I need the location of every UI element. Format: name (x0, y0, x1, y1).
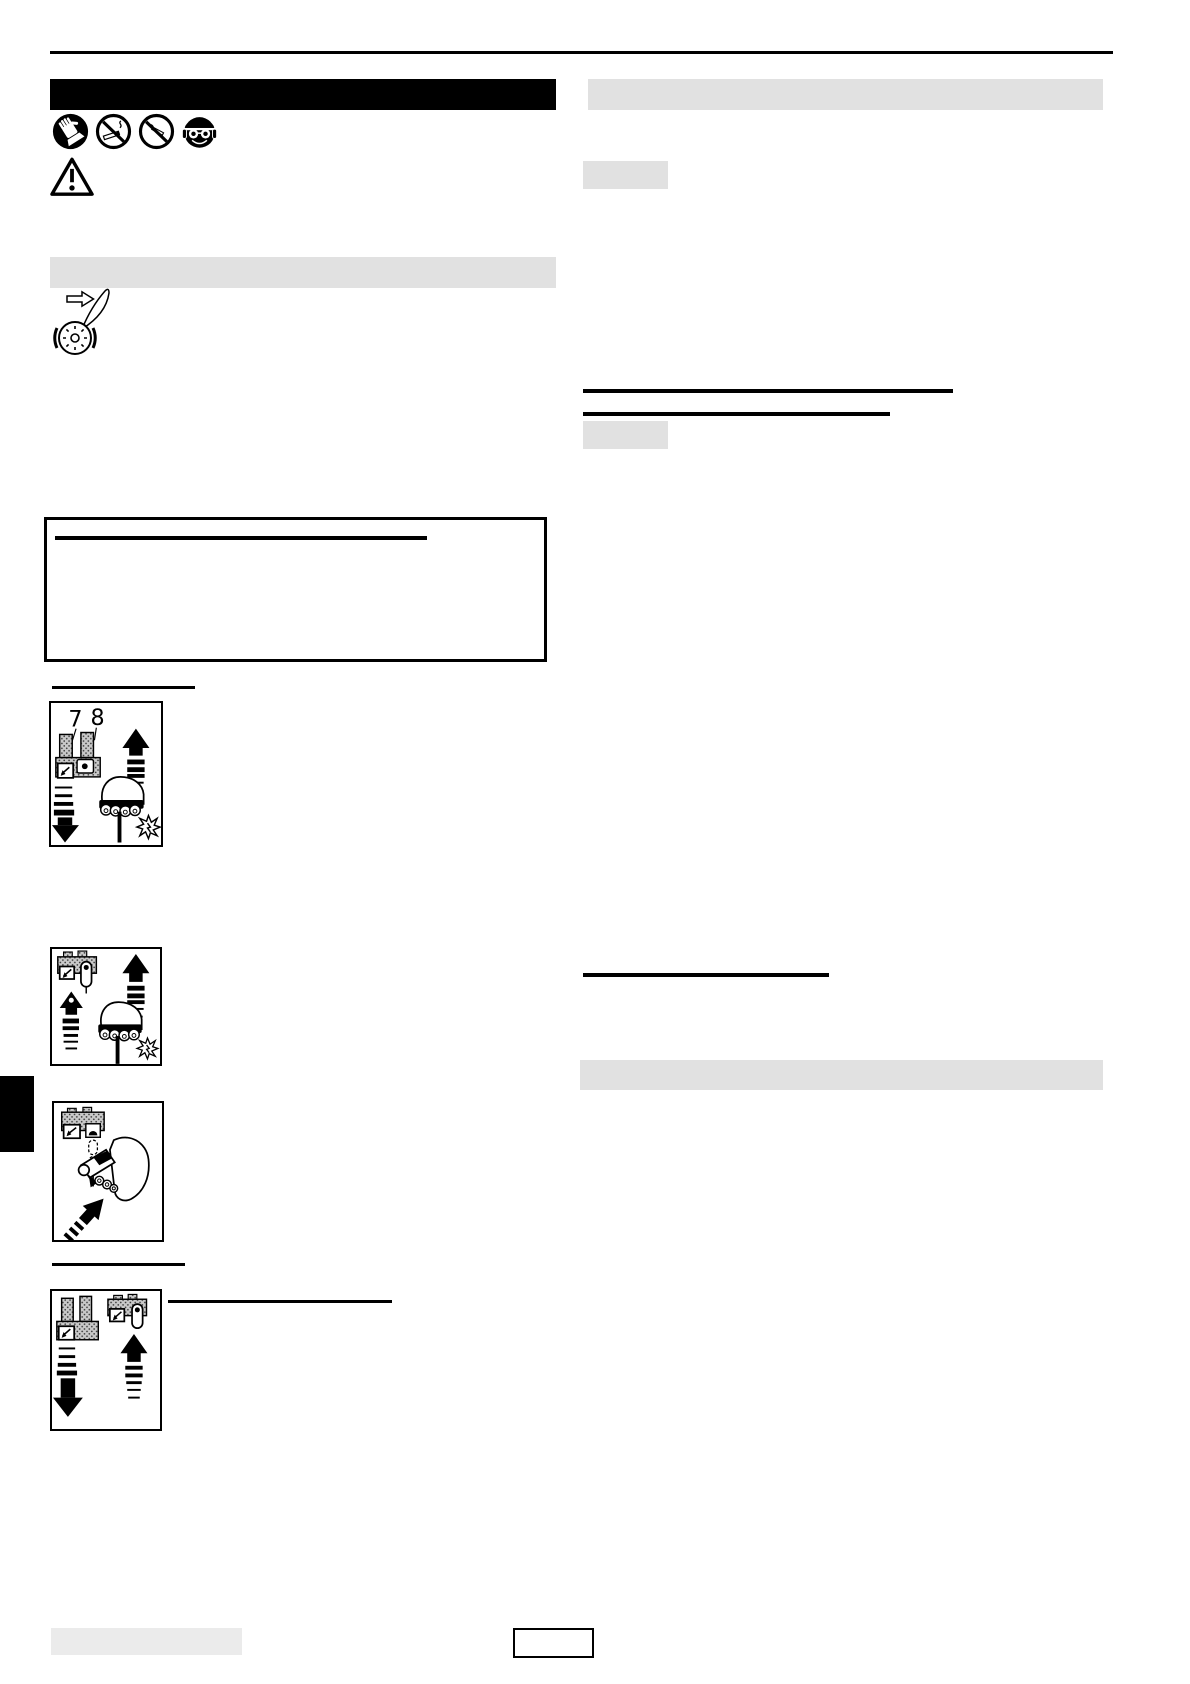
no-smoking-icon (95, 113, 132, 150)
blade-sharpening-illustration (50, 288, 115, 358)
figure-4-drawing (52, 1291, 160, 1429)
figure-3-drawing (54, 1103, 162, 1240)
note-label-box-2 (583, 421, 668, 449)
right-heading-bar (588, 79, 1103, 110)
left-heading-underline-2 (52, 1263, 185, 1266)
callout-8: 8 (91, 705, 105, 731)
top-rule (50, 51, 1113, 54)
figure-lever-positions (50, 1289, 162, 1431)
right-heading-bar-2 (580, 1060, 1103, 1090)
safety-icons-row (52, 113, 218, 150)
figure-primer-knob-hand-grip (52, 1101, 164, 1242)
note-label-box (583, 161, 668, 189)
figure-1-drawing: 7 8 (51, 703, 161, 845)
figure-2-drawing (52, 949, 160, 1064)
right-heading-underline-1 (583, 389, 953, 393)
right-heading-underline-2 (583, 412, 890, 416)
footer-document-code-box (51, 1628, 242, 1655)
footer-page-number-box (513, 1628, 594, 1658)
figure-starter-pull-lock-button (50, 947, 162, 1066)
right-heading-underline-3 (583, 973, 829, 977)
manual-page: 7 8 (0, 0, 1190, 1684)
wear-head-eye-ear-protection-icon (181, 113, 218, 150)
warning-triangle-icon (49, 156, 95, 198)
page-edge-index-tab (0, 1076, 34, 1152)
left-subheading-bar (50, 257, 556, 288)
left-heading-underline-3 (168, 1300, 392, 1303)
warning-notice-box (44, 517, 547, 662)
section-title-bar (50, 79, 556, 110)
figure-starter-pull-levers-7-8: 7 8 (49, 701, 163, 847)
wear-protective-gloves-icon (52, 113, 89, 150)
left-heading-underline-1 (52, 686, 195, 689)
no-open-flame-icon (138, 113, 175, 150)
warning-box-heading-underline (55, 536, 427, 540)
